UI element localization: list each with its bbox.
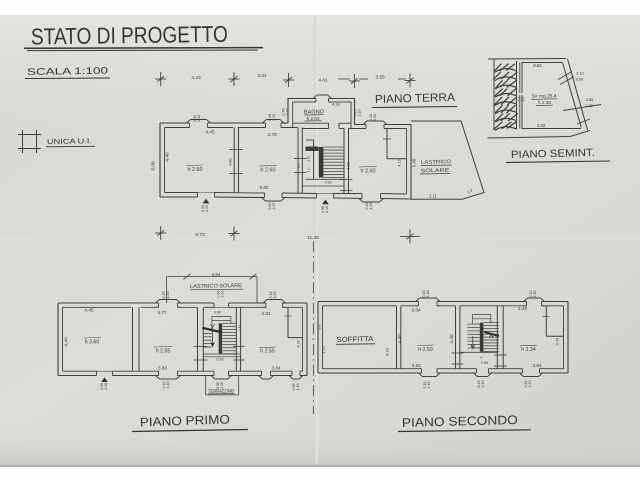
svg-text:4.48: 4.48 xyxy=(427,382,431,389)
svg-text:3.84: 3.84 xyxy=(533,363,542,368)
svg-text:2.6: 2.6 xyxy=(307,156,311,161)
svg-text:2.10: 2.10 xyxy=(104,383,108,390)
svg-text:3.81: 3.81 xyxy=(261,311,271,317)
svg-text:0.50: 0.50 xyxy=(576,77,584,82)
svg-text:2.10: 2.10 xyxy=(205,205,209,212)
svg-text:STATO DI PROGETTO: STATO DI PROGETTO xyxy=(31,21,228,50)
svg-text:4.18: 4.18 xyxy=(297,340,301,347)
svg-text:4.45: 4.45 xyxy=(205,130,215,136)
svg-text:1.10: 1.10 xyxy=(373,114,377,121)
svg-text:0.80: 0.80 xyxy=(260,185,269,190)
svg-text:LASTRICO SOLARE: LASTRICO SOLARE xyxy=(190,283,243,290)
svg-text:3.78: 3.78 xyxy=(267,132,277,138)
svg-text:4.15: 4.15 xyxy=(369,203,373,210)
svg-text:4.48: 4.48 xyxy=(426,291,430,298)
svg-text:4.18: 4.18 xyxy=(332,102,341,107)
svg-text:2.10: 2.10 xyxy=(286,109,290,116)
svg-text:5.48: 5.48 xyxy=(412,158,417,167)
svg-text:h 2.50: h 2.50 xyxy=(307,116,320,121)
svg-text:1.10: 1.10 xyxy=(272,114,276,121)
svg-text:4.41: 4.41 xyxy=(318,78,328,84)
svg-text:1.50: 1.50 xyxy=(533,291,537,298)
svg-text:1.45: 1.45 xyxy=(166,382,170,389)
svg-text:1.43: 1.43 xyxy=(238,325,242,332)
svg-text:4.40: 4.40 xyxy=(64,337,70,347)
svg-text:2.10: 2.10 xyxy=(325,206,329,213)
svg-text:3.19: 3.19 xyxy=(321,345,326,354)
svg-text:4.40: 4.40 xyxy=(481,381,485,388)
svg-text:3.84: 3.84 xyxy=(411,308,421,314)
svg-text:0.93: 0.93 xyxy=(214,311,221,315)
svg-text:1.0: 1.0 xyxy=(307,168,311,173)
svg-text:4.45: 4.45 xyxy=(84,308,94,314)
svg-text:2.15: 2.15 xyxy=(272,203,276,210)
svg-text:0.45: 0.45 xyxy=(556,338,560,345)
svg-text:h 2.40: h 2.40 xyxy=(538,100,552,106)
svg-text:4.15: 4.15 xyxy=(397,158,402,167)
svg-text:3.84: 3.84 xyxy=(272,365,281,370)
svg-text:0.93: 0.93 xyxy=(217,357,224,361)
svg-text:3.77: 3.77 xyxy=(157,310,167,316)
svg-text:PIANO TERRA: PIANO TERRA xyxy=(375,92,456,106)
svg-text:2.40: 2.40 xyxy=(221,291,225,298)
svg-text:2.11: 2.11 xyxy=(429,194,438,199)
svg-text:h 2.55: h 2.55 xyxy=(260,349,275,355)
svg-text:4.84: 4.84 xyxy=(212,272,221,277)
svg-text:6.73: 6.73 xyxy=(195,232,205,238)
svg-text:5.08: 5.08 xyxy=(151,161,157,171)
svg-text:4.40: 4.40 xyxy=(449,334,455,344)
svg-text:4.5: 4.5 xyxy=(297,164,301,169)
svg-text:8.8: 8.8 xyxy=(318,325,322,330)
svg-text:1.40: 1.40 xyxy=(528,381,532,388)
svg-text:4.40: 4.40 xyxy=(165,152,171,162)
svg-text:4.23: 4.23 xyxy=(191,75,201,81)
svg-text:3.55: 3.55 xyxy=(375,75,385,81)
svg-text:h 2.60: h 2.60 xyxy=(361,169,376,175)
svg-text:2.85: 2.85 xyxy=(586,97,594,102)
svg-text:4.82: 4.82 xyxy=(412,363,421,368)
svg-text:2.40: 2.40 xyxy=(220,382,224,389)
svg-text:1.10: 1.10 xyxy=(197,115,201,122)
svg-text:0.80: 0.80 xyxy=(229,159,233,166)
svg-text:8.60: 8.60 xyxy=(533,63,542,68)
svg-text:2: 2 xyxy=(480,356,484,358)
svg-text:0.4: 0.4 xyxy=(522,97,526,102)
svg-text:1.45: 1.45 xyxy=(273,292,277,299)
svg-text:0.69: 0.69 xyxy=(481,361,488,365)
svg-text:3.40: 3.40 xyxy=(518,306,528,312)
svg-text:SCALA 1:100: SCALA 1:100 xyxy=(27,66,108,78)
svg-text:3.83: 3.83 xyxy=(158,366,167,371)
svg-text:SOFFITTA: SOFFITTA xyxy=(336,334,373,344)
svg-text:1.40: 1.40 xyxy=(296,384,300,391)
svg-text:3.41: 3.41 xyxy=(257,73,267,79)
svg-text:h 2.60: h 2.60 xyxy=(188,167,203,173)
svg-text:4.40: 4.40 xyxy=(397,334,403,344)
svg-text:4.10: 4.10 xyxy=(346,161,351,170)
svg-text:h 2.50: h 2.50 xyxy=(418,347,433,353)
svg-text:h 3.60: h 3.60 xyxy=(85,340,100,346)
svg-text:h 2.55: h 2.55 xyxy=(156,349,171,355)
svg-text:11.45: 11.45 xyxy=(307,235,319,241)
svg-text:UNICA U.I.: UNICA U.I. xyxy=(47,138,92,146)
svg-text:h 1.34: h 1.34 xyxy=(521,347,536,353)
svg-text:h 2.60: h 2.60 xyxy=(261,168,276,174)
svg-text:2.10: 2.10 xyxy=(358,110,362,117)
svg-text:3.82: 3.82 xyxy=(537,123,546,128)
svg-text:2.10: 2.10 xyxy=(576,71,584,76)
svg-text:4.10: 4.10 xyxy=(385,347,390,356)
svg-text:PIANO SEMINT.: PIANO SEMINT. xyxy=(511,147,595,161)
svg-text:0.90: 0.90 xyxy=(325,181,332,185)
svg-text:1.85: 1.85 xyxy=(585,103,593,108)
